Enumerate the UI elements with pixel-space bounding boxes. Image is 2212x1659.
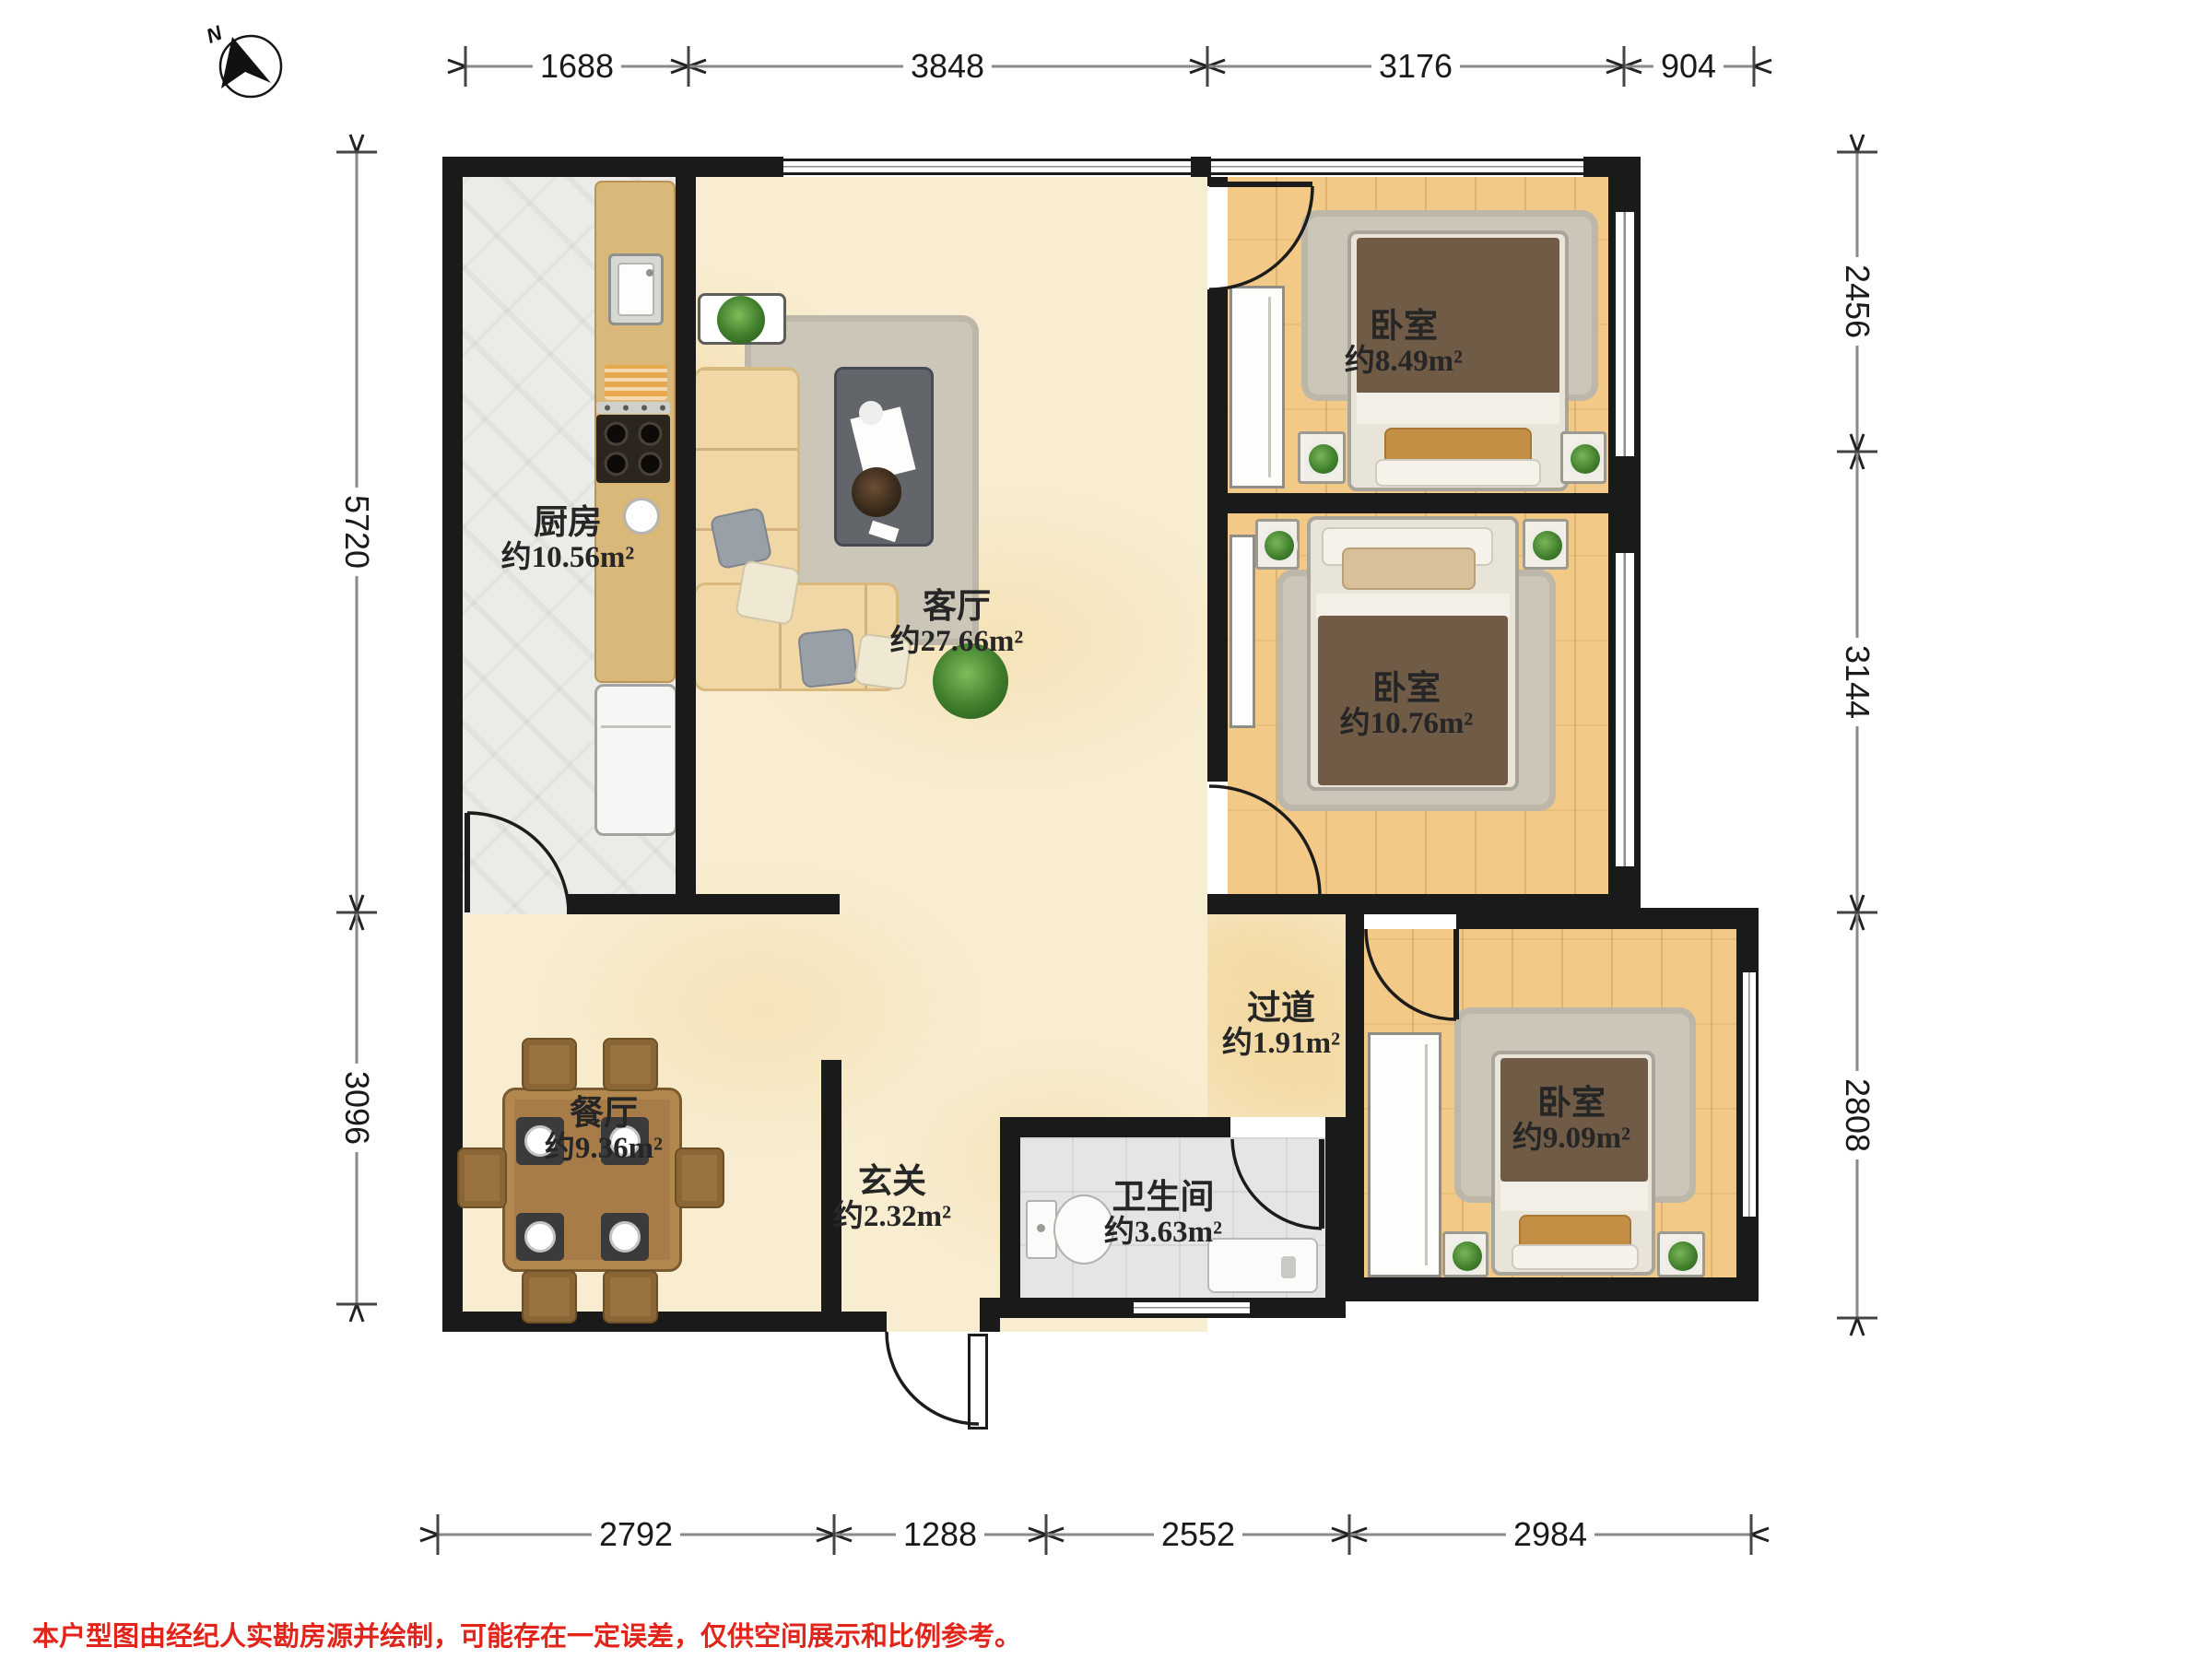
room-area: 约10.76m²: [1340, 707, 1474, 741]
room-area: 约1.91m²: [1222, 1027, 1340, 1061]
room-label-bedroom-bottom: 卧室 约9.09m²: [1512, 1084, 1630, 1156]
room-area: 约3.63m²: [1104, 1216, 1222, 1250]
dim-bottom-3: 2552: [1154, 1515, 1242, 1554]
floorplan-canvas: N 厨房 约10.56m² 客厅 约27.66m² 卧室 约8.49m² 卧室 …: [0, 0, 2212, 1659]
compass: N: [203, 20, 281, 97]
room-name: 卧室: [1345, 307, 1463, 345]
compass-north-letter: N: [203, 20, 226, 48]
dim-right-1: 2456: [1838, 257, 1877, 346]
room-name: 餐厅: [545, 1094, 663, 1132]
room-label-entry: 玄关 约2.32m²: [833, 1162, 951, 1234]
disclaimer-text: 本户型图由经纪人实勘房源并绘制，可能存在一定误差，仅供空间展示和比例参考。: [32, 1615, 1021, 1653]
room-name: 卧室: [1512, 1084, 1630, 1122]
dim-right-3: 2808: [1838, 1071, 1877, 1159]
room-label-living: 客厅 约27.66m²: [890, 587, 1024, 659]
room-label-bedroom-mid: 卧室 约10.76m²: [1340, 669, 1474, 741]
door-leaves: [467, 184, 1456, 1229]
room-name: 过道: [1222, 989, 1340, 1027]
room-name: 客厅: [890, 587, 1024, 625]
dim-right-2: 3144: [1838, 638, 1877, 726]
room-label-hallway: 过道 约1.91m²: [1222, 989, 1340, 1061]
dim-left-2: 3096: [337, 1064, 376, 1152]
kitchen-door-arc: [467, 813, 569, 914]
dim-top-1: 1688: [533, 47, 621, 86]
room-label-kitchen: 厨房 约10.56m²: [501, 503, 635, 575]
room-label-bedroom-top: 卧室 约8.49m²: [1345, 307, 1463, 379]
room-area: 约2.32m²: [833, 1200, 951, 1234]
room-label-bathroom: 卫生间 约3.63m²: [1104, 1178, 1222, 1250]
room-label-dining: 餐厅 约9.36m²: [545, 1094, 663, 1166]
dim-bottom-2: 1288: [896, 1515, 984, 1554]
bathroom-door-arc: [1232, 1139, 1322, 1229]
room-area: 约9.09m²: [1512, 1122, 1630, 1156]
room-name: 卧室: [1340, 669, 1474, 707]
dim-top-3: 3176: [1371, 47, 1460, 86]
room-area: 约9.36m²: [545, 1132, 663, 1166]
room-area: 约8.49m²: [1345, 345, 1463, 379]
bedroom-bottom-door-arc: [1366, 929, 1456, 1019]
dim-bottom-4: 2984: [1506, 1515, 1594, 1554]
room-area: 约10.56m²: [501, 541, 635, 575]
lines-overlay: N: [0, 0, 2212, 1659]
door-arcs: [467, 186, 1456, 1424]
room-name: 玄关: [833, 1162, 951, 1200]
dim-bottom-1: 2792: [592, 1515, 680, 1554]
room-name: 卫生间: [1104, 1178, 1222, 1216]
dim-left-1: 5720: [337, 488, 376, 576]
dim-top-4: 904: [1653, 47, 1724, 86]
entry-door-arc: [887, 1332, 979, 1424]
bedroom-top-door-arc: [1209, 186, 1312, 289]
bedroom-mid-door-arc: [1209, 786, 1320, 897]
room-area: 约27.66m²: [890, 625, 1024, 659]
room-name: 厨房: [501, 503, 635, 541]
dim-top-2: 3848: [903, 47, 992, 86]
